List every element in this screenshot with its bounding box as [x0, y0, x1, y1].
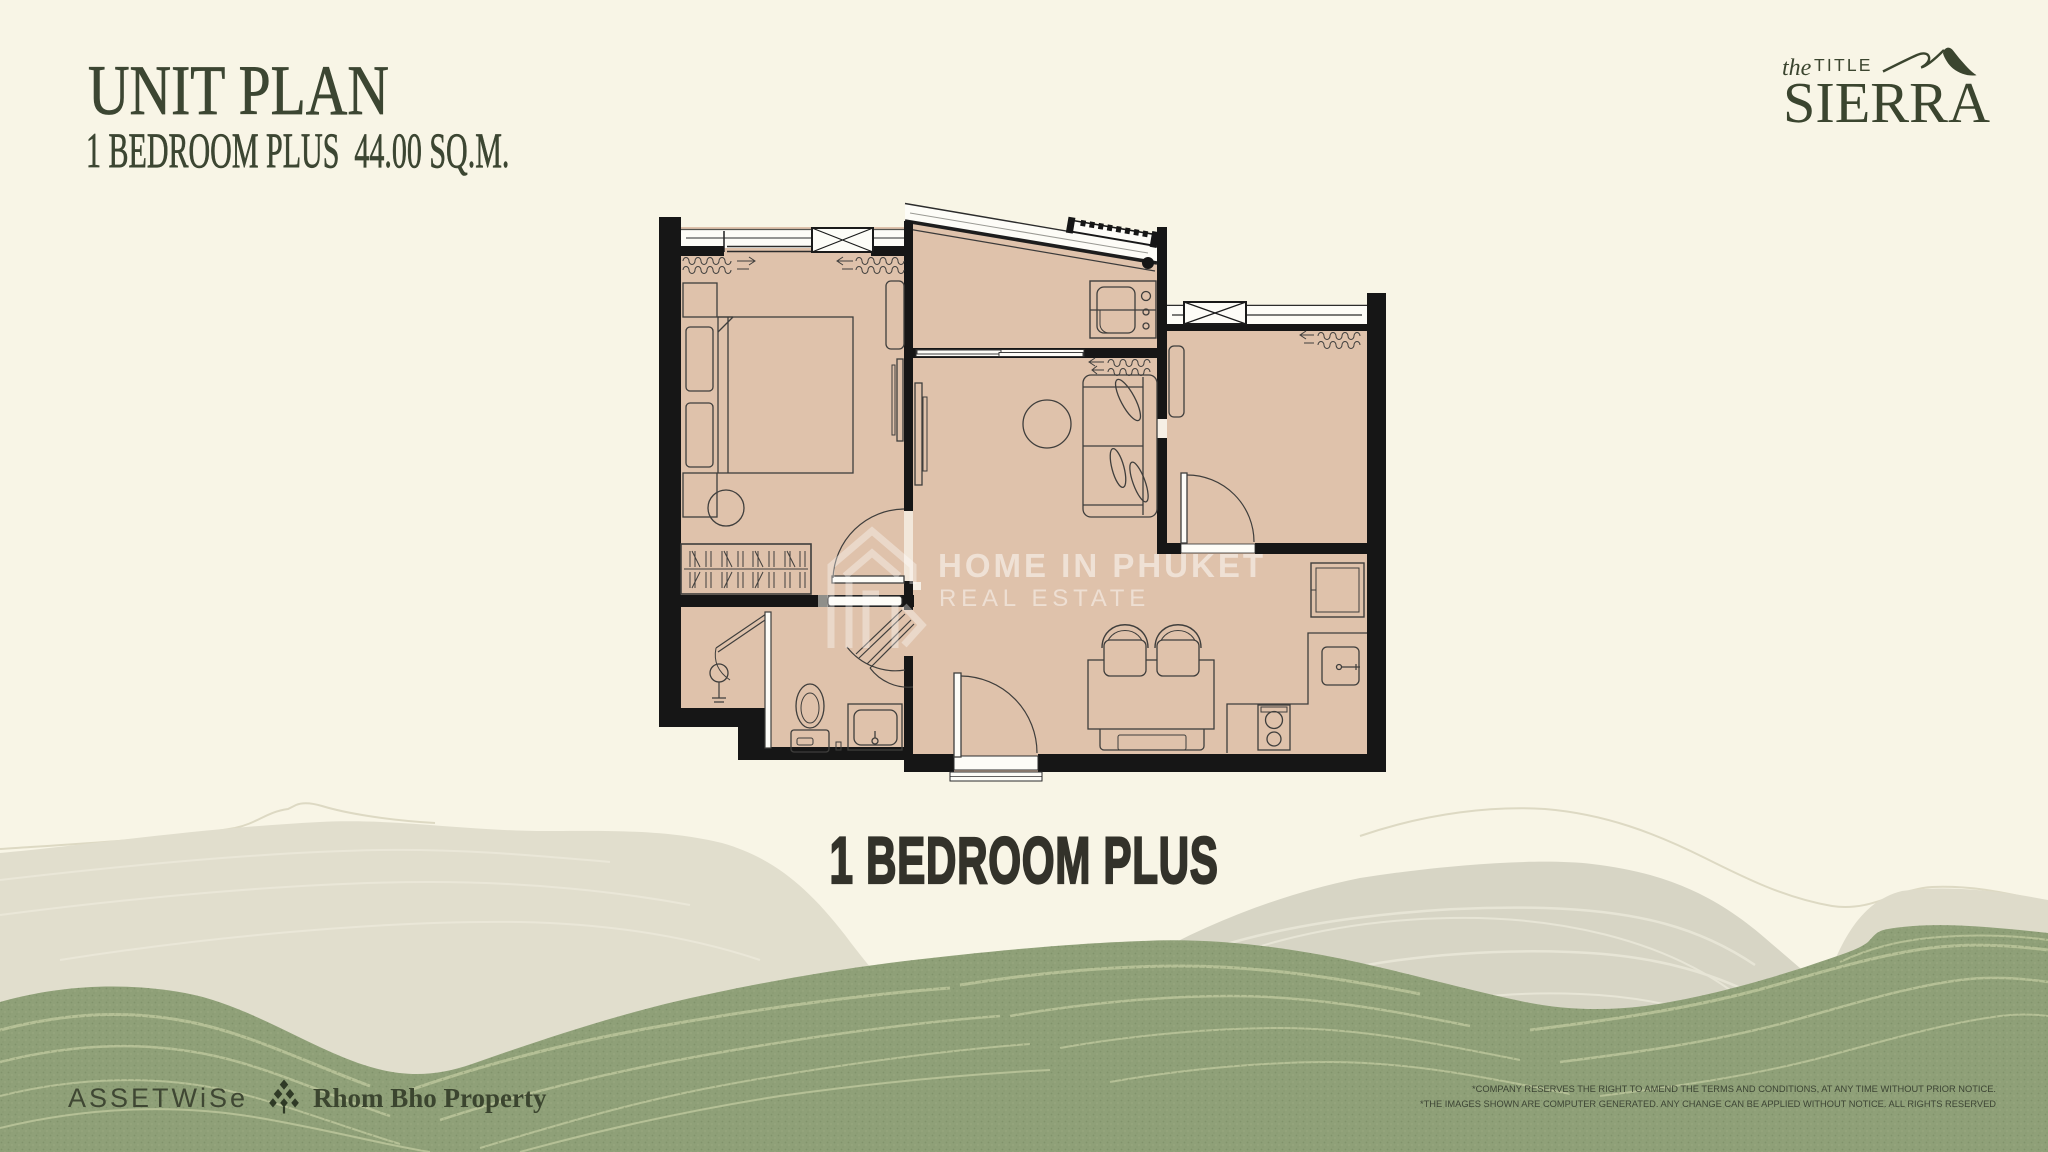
- svg-text:REAL ESTATE: REAL ESTATE: [939, 585, 1150, 612]
- svg-text:HOME IN PHUKET: HOME IN PHUKET: [938, 547, 1266, 584]
- svg-text:SIERRA: SIERRA: [1783, 70, 1990, 135]
